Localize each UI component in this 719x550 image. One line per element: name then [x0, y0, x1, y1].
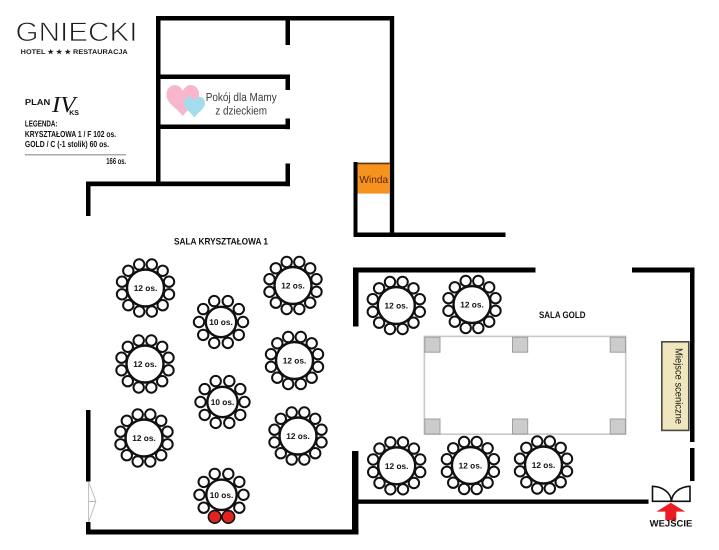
svg-text:GNIECKI: GNIECKI	[16, 17, 138, 47]
svg-text:10 os.: 10 os.	[210, 490, 234, 500]
svg-text:12 os.: 12 os.	[459, 461, 483, 471]
svg-text:Pokój dla Mamy: Pokój dla Mamy	[206, 91, 277, 104]
svg-text:WEJŚCIE: WEJŚCIE	[650, 518, 693, 529]
svg-text:12 os.: 12 os.	[133, 359, 157, 369]
svg-text:12 os.: 12 os.	[460, 300, 484, 310]
svg-text:LEGENDA:: LEGENDA:	[25, 118, 58, 128]
svg-text:PLAN: PLAN	[25, 97, 50, 107]
svg-text:10 os.: 10 os.	[211, 397, 235, 407]
svg-text:12 os.: 12 os.	[283, 356, 307, 366]
svg-text:KRYSZTAŁOWA 1 / F 102 os.: KRYSZTAŁOWA 1 / F 102 os.	[25, 129, 116, 139]
svg-text:HOTEL ★ ★ ★ RESTAURACJA: HOTEL ★ ★ ★ RESTAURACJA	[21, 48, 128, 56]
svg-text:12 os.: 12 os.	[286, 431, 310, 441]
svg-text:12 os.: 12 os.	[281, 281, 305, 291]
svg-text:Winda: Winda	[359, 175, 388, 186]
svg-text:GOLD / C (-1 stolik) 60 os.: GOLD / C (-1 stolik) 60 os.	[25, 139, 109, 149]
svg-text:12 os.: 12 os.	[385, 301, 409, 311]
svg-text:SALA KRYSZTAŁOWA 1: SALA KRYSZTAŁOWA 1	[174, 236, 268, 247]
svg-text:z dzieckiem: z dzieckiem	[215, 105, 267, 118]
svg-text:166 os.: 166 os.	[106, 156, 126, 166]
svg-text:Miejsce sceniczne: Miejsce sceniczne	[672, 348, 683, 424]
svg-text:12 os.: 12 os.	[132, 433, 156, 443]
svg-text:12 os.: 12 os.	[385, 461, 409, 471]
svg-text:10 os.: 10 os.	[209, 317, 233, 327]
svg-text:KS: KS	[69, 110, 79, 117]
svg-text:12 os.: 12 os.	[532, 460, 556, 470]
svg-text:12 os.: 12 os.	[134, 283, 158, 293]
svg-text:SALA GOLD: SALA GOLD	[539, 309, 586, 320]
